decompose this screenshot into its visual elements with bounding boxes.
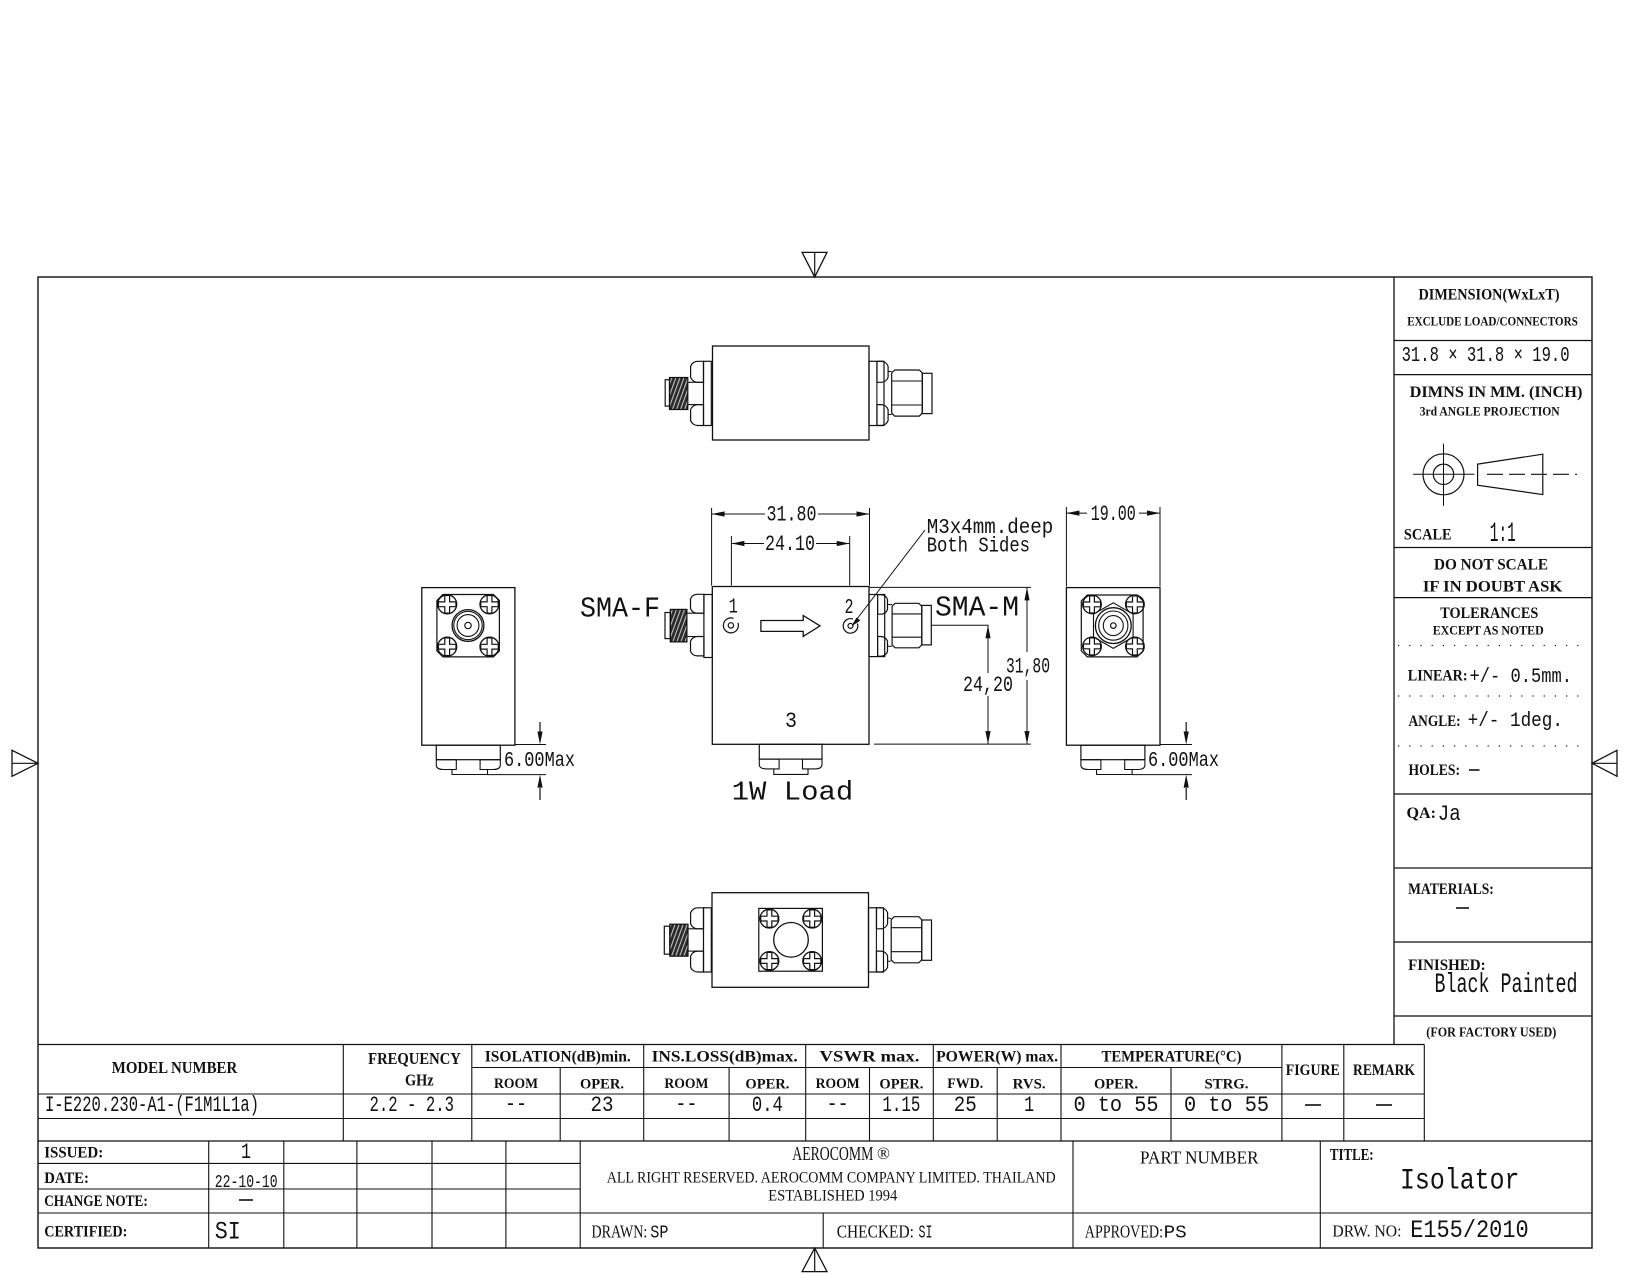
svg-text:1: 1 — [1024, 1093, 1034, 1118]
svg-text:PS: PS — [1164, 1223, 1187, 1243]
svg-text:Both Sides: Both Sides — [927, 536, 1030, 559]
svg-text:FIGURE: FIGURE — [1286, 1062, 1340, 1079]
svg-text:Ja: Ja — [1438, 802, 1461, 827]
svg-text:+/- 1deg.: +/- 1deg. — [1468, 710, 1563, 733]
svg-text:HOLES:: HOLES: — [1409, 762, 1461, 779]
svg-text:APPROVED:: APPROVED: — [1085, 1221, 1163, 1241]
svg-text:ISSUED:: ISSUED: — [44, 1144, 103, 1161]
svg-text:6.00Max: 6.00Max — [504, 750, 575, 773]
svg-text:TITLE:: TITLE: — [1330, 1145, 1374, 1164]
svg-text:DIMENSION(WxLxT): DIMENSION(WxLxT) — [1419, 287, 1560, 304]
svg-text:--: -- — [827, 1092, 849, 1117]
svg-text:1W Load: 1W Load — [732, 779, 854, 809]
svg-text:CHANGE NOTE:: CHANGE NOTE: — [44, 1193, 148, 1210]
svg-text:ROOM: ROOM — [816, 1076, 860, 1092]
svg-text:POWER(W) max.: POWER(W) max. — [936, 1049, 1058, 1066]
svg-text:SMA-M: SMA-M — [935, 592, 1019, 625]
svg-text:MODEL NUMBER: MODEL NUMBER — [112, 1058, 238, 1077]
svg-text:1: 1 — [729, 597, 738, 620]
svg-text:24,20: 24,20 — [963, 673, 1013, 698]
svg-text:AEROCOMM: AEROCOMM — [792, 1143, 873, 1165]
svg-text:FWD.: FWD. — [947, 1076, 983, 1092]
svg-text:VSWR max.: VSWR max. — [820, 1049, 920, 1066]
svg-text:31.8 × 31.8 × 19.0: 31.8 × 31.8 × 19.0 — [1402, 345, 1570, 368]
svg-text:TEMPERATURE(°C): TEMPERATURE(°C) — [1102, 1049, 1242, 1066]
svg-text:CHECKED:: CHECKED: — [837, 1221, 914, 1241]
svg-text:SI: SI — [215, 1218, 241, 1247]
svg-text:Black Painted: Black Painted — [1435, 970, 1578, 1001]
svg-text:ROOM: ROOM — [494, 1076, 538, 1092]
svg-text:LINEAR:: LINEAR: — [1408, 668, 1468, 685]
svg-text:DRAWN:: DRAWN: — [592, 1221, 648, 1241]
svg-text:19.00: 19.00 — [1091, 502, 1136, 527]
svg-text:24.10: 24.10 — [765, 532, 815, 557]
svg-text:SCALE: SCALE — [1404, 527, 1452, 544]
svg-text:STRG.: STRG. — [1205, 1077, 1249, 1093]
svg-text:SMA-F: SMA-F — [580, 593, 660, 626]
svg-text:MATERIALS:: MATERIALS: — [1408, 881, 1494, 898]
svg-text:E155/2010: E155/2010 — [1410, 1216, 1529, 1245]
svg-text:®: ® — [877, 1144, 890, 1163]
svg-text:2: 2 — [845, 597, 854, 620]
svg-text:ALL RIGHT RESERVED. AEROCOM: ALL RIGHT RESERVED. AEROCOMM COMPANY LIM… — [607, 1170, 1056, 1187]
svg-text:--: -- — [505, 1092, 527, 1117]
svg-text:31.80: 31.80 — [767, 503, 817, 528]
svg-text:3rd ANGLE PROJECTION: 3rd ANGLE PROJECTION — [1420, 404, 1561, 419]
svg-text:1.15: 1.15 — [882, 1093, 920, 1118]
svg-text:22-10-10: 22-10-10 — [215, 1173, 278, 1193]
svg-text:1: 1 — [241, 1140, 251, 1165]
svg-text:QA:: QA: — [1407, 805, 1437, 822]
svg-text:3: 3 — [785, 709, 797, 734]
svg-text:0 to 55: 0 to 55 — [1184, 1093, 1269, 1118]
svg-text:0.4: 0.4 — [752, 1093, 783, 1118]
svg-text:DIMNS IN MM. (INCH): DIMNS IN MM. (INCH) — [1410, 384, 1583, 401]
svg-text:DRW. NO:: DRW. NO: — [1332, 1221, 1401, 1240]
svg-text:23: 23 — [591, 1093, 614, 1118]
svg-text:2.2 - 2.3: 2.2 - 2.3 — [370, 1093, 455, 1118]
svg-text:--: -- — [675, 1092, 697, 1117]
svg-text:DO NOT SCALE: DO NOT SCALE — [1434, 557, 1548, 574]
svg-text:PART NUMBER: PART NUMBER — [1140, 1148, 1259, 1168]
svg-text:ANGLE:: ANGLE: — [1409, 713, 1461, 730]
svg-text:IF IN DOUBT ASK: IF IN DOUBT ASK — [1423, 579, 1563, 596]
svg-text:6.00Max: 6.00Max — [1148, 750, 1219, 773]
svg-text:OPER.: OPER. — [1094, 1077, 1138, 1093]
svg-text:EXCLUDE LOAD/CONNECTORS: EXCLUDE LOAD/CONNECTORS — [1407, 314, 1578, 329]
svg-text:ISOLATION(dB)min.: ISOLATION(dB)min. — [485, 1049, 631, 1066]
svg-text:EXCEPT AS NOTED: EXCEPT AS NOTED — [1433, 623, 1544, 638]
svg-text:SI: SI — [919, 1223, 933, 1243]
svg-text:TOLERANCES: TOLERANCES — [1440, 605, 1538, 622]
svg-text:REMARK: REMARK — [1353, 1062, 1415, 1079]
svg-text:FREQUENCY: FREQUENCY — [368, 1049, 461, 1068]
svg-text:OPER.: OPER. — [745, 1077, 789, 1093]
svg-text:ROOM: ROOM — [664, 1076, 708, 1092]
svg-text:+/- 0.5mm.: +/- 0.5mm. — [1470, 666, 1573, 689]
svg-text:OPER.: OPER. — [580, 1077, 624, 1093]
svg-text:GHz: GHz — [405, 1070, 434, 1089]
svg-text:CERTIFIED:: CERTIFIED: — [44, 1224, 127, 1241]
svg-text:0 to 55: 0 to 55 — [1074, 1093, 1159, 1118]
svg-text:ESTABLISHED 1994: ESTABLISHED 1994 — [768, 1188, 897, 1205]
svg-text:(FOR FACTORY USED): (FOR FACTORY USED) — [1426, 1025, 1556, 1040]
svg-text:DATE:: DATE: — [44, 1170, 89, 1187]
svg-text:OPER.: OPER. — [879, 1077, 923, 1093]
svg-text:I-E220.230-A1-(F1M1L1a): I-E220.230-A1-(F1M1L1a) — [45, 1093, 259, 1118]
svg-text:SP: SP — [650, 1223, 668, 1243]
svg-text:RVS.: RVS. — [1013, 1077, 1046, 1093]
svg-text:1:1: 1:1 — [1490, 519, 1516, 550]
svg-text:Isolator: Isolator — [1400, 1165, 1520, 1199]
svg-text:INS.LOSS(dB)max.: INS.LOSS(dB)max. — [652, 1049, 798, 1066]
svg-text:25: 25 — [954, 1093, 977, 1118]
